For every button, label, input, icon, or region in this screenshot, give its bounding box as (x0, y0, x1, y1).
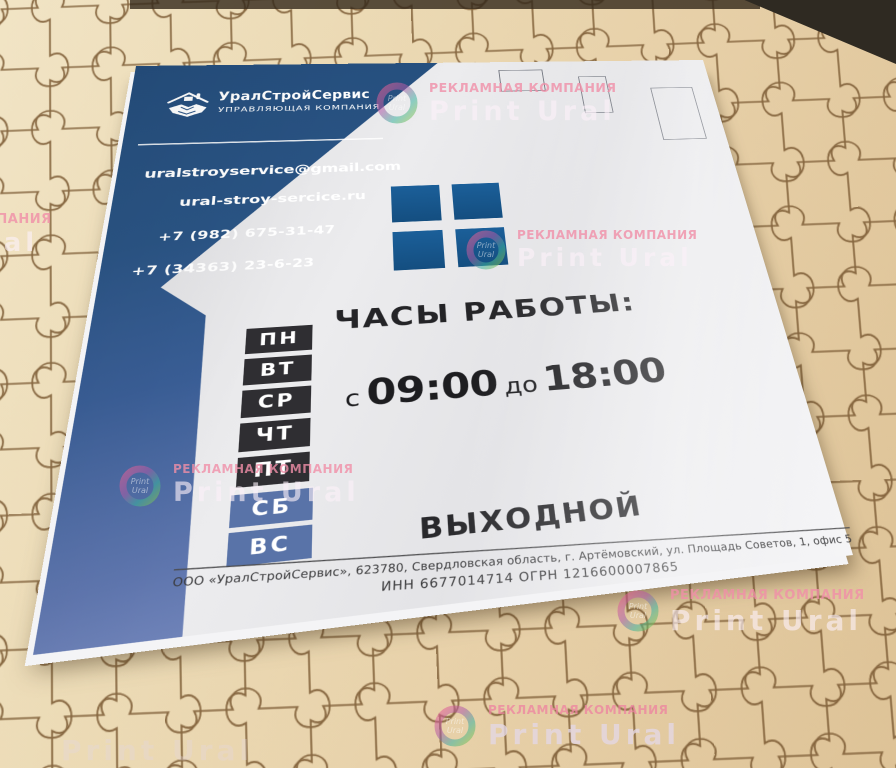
weekend-status: ВЫХОДНОЙ (418, 490, 644, 546)
house-window-icon (391, 183, 508, 271)
window-pane (391, 185, 442, 223)
day-badge-mon: ПН (245, 325, 313, 354)
cut-mark-1 (498, 70, 545, 92)
day-badge-sat: СБ (229, 488, 313, 529)
day-badge-fri: ПТ (236, 452, 310, 488)
working-hours-text: с 09:00 до 18:00 (345, 352, 669, 416)
hours-from-time: 09:00 (366, 364, 500, 414)
cut-mark-3 (650, 87, 707, 140)
day-badge-thu: ЧТ (238, 418, 310, 452)
sign-board: УралСтройСервис УПРАВЛЯЮЩАЯ КОМПАНИЯ ura… (33, 60, 853, 655)
hours-title: ЧАСЫ РАБОТЫ: (334, 287, 638, 335)
window-pane (452, 183, 503, 220)
hours-to-word: до (503, 373, 539, 400)
hours-from-word: с (345, 386, 360, 413)
window-pane (455, 227, 508, 267)
puzzle-top-gap (130, 0, 760, 9)
company-logo-icon (162, 90, 213, 120)
hours-to-time: 18:00 (540, 352, 669, 400)
cut-mark-2 (578, 76, 614, 113)
day-badge-wed: СР (241, 386, 312, 419)
window-pane (392, 230, 445, 271)
day-badge-tue: ВТ (243, 355, 312, 386)
photo-scene: УралСтройСервис УПРАВЛЯЮЩАЯ КОМПАНИЯ ura… (0, 0, 896, 768)
